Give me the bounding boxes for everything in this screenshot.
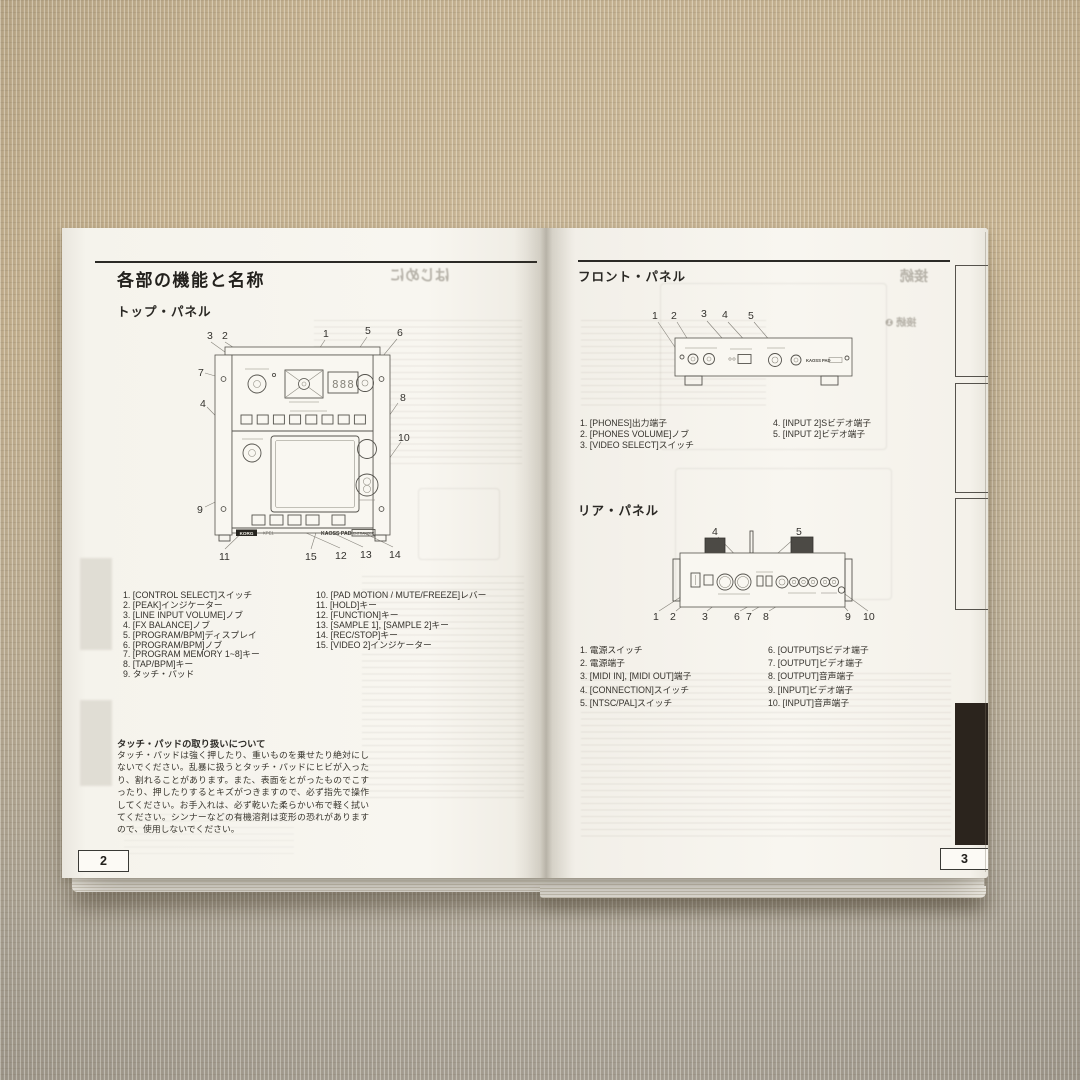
korg-manual-open-book: はじめに 各部の機能と名称 トップ・パネル xyxy=(62,228,988,878)
side-bracket xyxy=(673,559,680,601)
led-display-value: 888 xyxy=(332,378,355,391)
svg-text:8: 8 xyxy=(400,392,406,404)
svg-text:5: 5 xyxy=(365,325,371,337)
legend-item: 1. 電源スイッチ xyxy=(580,644,691,657)
svg-text:10: 10 xyxy=(863,611,875,623)
legend-item: 10. [INPUT]音声端子 xyxy=(768,697,869,710)
svg-text:1: 1 xyxy=(652,310,658,322)
bleedthrough-heading-right: 接続 xyxy=(900,266,928,286)
svg-text:2: 2 xyxy=(670,611,676,623)
index-tab-4-active xyxy=(955,703,988,845)
rear-panel-legend-col1: 1. 電源スイッチ 2. 電源端子 3. [MIDI IN], [MIDI OU… xyxy=(580,644,691,710)
korg-logo: KORG KPE1 xyxy=(236,530,274,537)
svg-text:1: 1 xyxy=(323,328,329,340)
lever-icon xyxy=(750,531,753,553)
svg-text:8: 8 xyxy=(763,611,769,623)
top-panel-diagram: 888 xyxy=(195,323,410,563)
svg-text:15: 15 xyxy=(305,551,317,563)
header-rule xyxy=(578,260,950,262)
top-panel-legend-col2: 10. [PAD MOTION / MUTE/FREEZE]レバー 11. [H… xyxy=(316,591,486,650)
kaoss-pad-logo: KAOSS PAD ENTRANCER xyxy=(321,530,375,538)
svg-text:10: 10 xyxy=(398,432,410,444)
legend-item: 1. [PHONES]出力端子 xyxy=(580,418,694,429)
header-rule xyxy=(95,261,537,263)
svg-text:14: 14 xyxy=(389,549,401,561)
svg-text:6: 6 xyxy=(397,327,403,339)
svg-text:7: 7 xyxy=(198,367,204,379)
bleedthrough-subheading-right: 接続 ❶ xyxy=(885,314,916,329)
svg-text:4: 4 xyxy=(712,526,718,538)
svg-text:1: 1 xyxy=(653,611,659,623)
page-edge-line xyxy=(985,232,986,872)
legend-item: 9. タッチ・パッド xyxy=(123,670,260,680)
legend-item: 7. [OUTPUT]ビデオ端子 xyxy=(768,657,869,670)
svg-text:13: 13 xyxy=(360,549,372,561)
page-title: 各部の機能と名称 xyxy=(117,266,265,291)
svg-text:4: 4 xyxy=(200,398,206,410)
model-label: KPE1 xyxy=(263,531,274,536)
legend-item: 9. [INPUT]ビデオ端子 xyxy=(768,684,869,697)
front-panel-diagram: KAOSS PAD 1 2 3 4 5 xyxy=(635,305,870,400)
callout-numbers: 1 2 3 4 5 xyxy=(652,308,754,322)
legend-item: 3. [VIDEO SELECT]スイッチ xyxy=(580,440,694,451)
legend-item: 5. [NTSC/PAL]スイッチ xyxy=(580,697,691,710)
bleedthrough-tab xyxy=(80,558,112,650)
note-title: タッチ・パッドの取り扱いについて xyxy=(117,736,265,750)
legend-item: 6. [OUTPUT]Sビデオ端子 xyxy=(768,644,869,657)
device-foot xyxy=(685,376,702,385)
svg-text:12: 12 xyxy=(335,550,347,562)
front-panel-legend-col2: 4. [INPUT 2]Sビデオ端子 5. [INPUT 2]ビデオ端子 xyxy=(773,418,871,440)
section-title-rear-panel: リア・パネル xyxy=(578,500,659,519)
device-outline xyxy=(680,553,845,607)
page-number-3: 3 xyxy=(940,848,988,870)
svg-text:6: 6 xyxy=(734,611,740,623)
page-stack-edge-right xyxy=(540,886,986,898)
section-title-top-panel: トップ・パネル xyxy=(117,301,212,320)
page-number-2: 2 xyxy=(78,850,129,872)
svg-text:2: 2 xyxy=(222,330,228,342)
device-foot xyxy=(821,376,838,385)
page-left: はじめに 各部の機能と名称 トップ・パネル xyxy=(62,228,545,878)
device-outline xyxy=(675,338,852,376)
rear-panel-legend-col2: 6. [OUTPUT]Sビデオ端子 7. [OUTPUT]ビデオ端子 8. [O… xyxy=(768,644,869,710)
legend-item: 15. [VIDEO 2]インジケーター xyxy=(316,641,486,651)
front-panel-legend-col1: 1. [PHONES]出力端子 2. [PHONES VOLUME]ノブ 3. … xyxy=(580,418,694,451)
legend-item: 8. [OUTPUT]音声端子 xyxy=(768,670,869,683)
svg-text:11: 11 xyxy=(219,551,230,563)
svg-text:KAOSS PAD: KAOSS PAD xyxy=(806,358,831,363)
bleedthrough-tab xyxy=(80,700,112,786)
svg-text:5: 5 xyxy=(748,310,754,322)
svg-text:3: 3 xyxy=(701,308,707,320)
index-tab-2 xyxy=(955,383,988,493)
svg-text:9: 9 xyxy=(845,611,851,623)
svg-text:7: 7 xyxy=(746,611,752,623)
svg-text:ENTRANCER: ENTRANCER xyxy=(353,531,375,535)
index-tab-3 xyxy=(955,498,988,610)
index-tab-1 xyxy=(955,265,988,377)
svg-text:KAOSS PAD: KAOSS PAD xyxy=(321,531,352,537)
svg-text:9: 9 xyxy=(197,504,203,516)
legend-item: 3. [MIDI IN], [MIDI OUT]端子 xyxy=(580,670,691,683)
section-title-front-panel: フロント・パネル xyxy=(578,266,686,285)
svg-text:KORG: KORG xyxy=(240,531,254,536)
legend-item: 4. [CONNECTION]スイッチ xyxy=(580,684,691,697)
page-right: 接続 接続 ❶ フロント・パネル xyxy=(545,228,988,878)
svg-text:3: 3 xyxy=(207,330,213,342)
bleedthrough-figure xyxy=(418,488,500,560)
bleedthrough-heading-left: はじめに xyxy=(390,264,450,285)
svg-text:4: 4 xyxy=(722,309,728,321)
legend-item: 5. [INPUT 2]ビデオ端子 xyxy=(773,429,871,440)
note-body: タッチ・パッドは強く押したり、重いものを乗せたり絶対にしないでください。乱暴に扱… xyxy=(117,749,369,836)
svg-text:5: 5 xyxy=(796,526,802,538)
svg-text:2: 2 xyxy=(671,310,677,322)
svg-text:3: 3 xyxy=(702,611,708,623)
rear-panel-diagram: 4 5 1 2 3 6 7 8 9 10 xyxy=(636,523,881,623)
top-panel-legend-col1: 1. [CONTROL SELECT]スイッチ 2. [PEAK]インジケーター… xyxy=(123,591,260,680)
legend-item: 2. [PHONES VOLUME]ノブ xyxy=(580,429,694,440)
legend-item: 2. 電源端子 xyxy=(580,657,691,670)
legend-item: 4. [INPUT 2]Sビデオ端子 xyxy=(773,418,871,429)
